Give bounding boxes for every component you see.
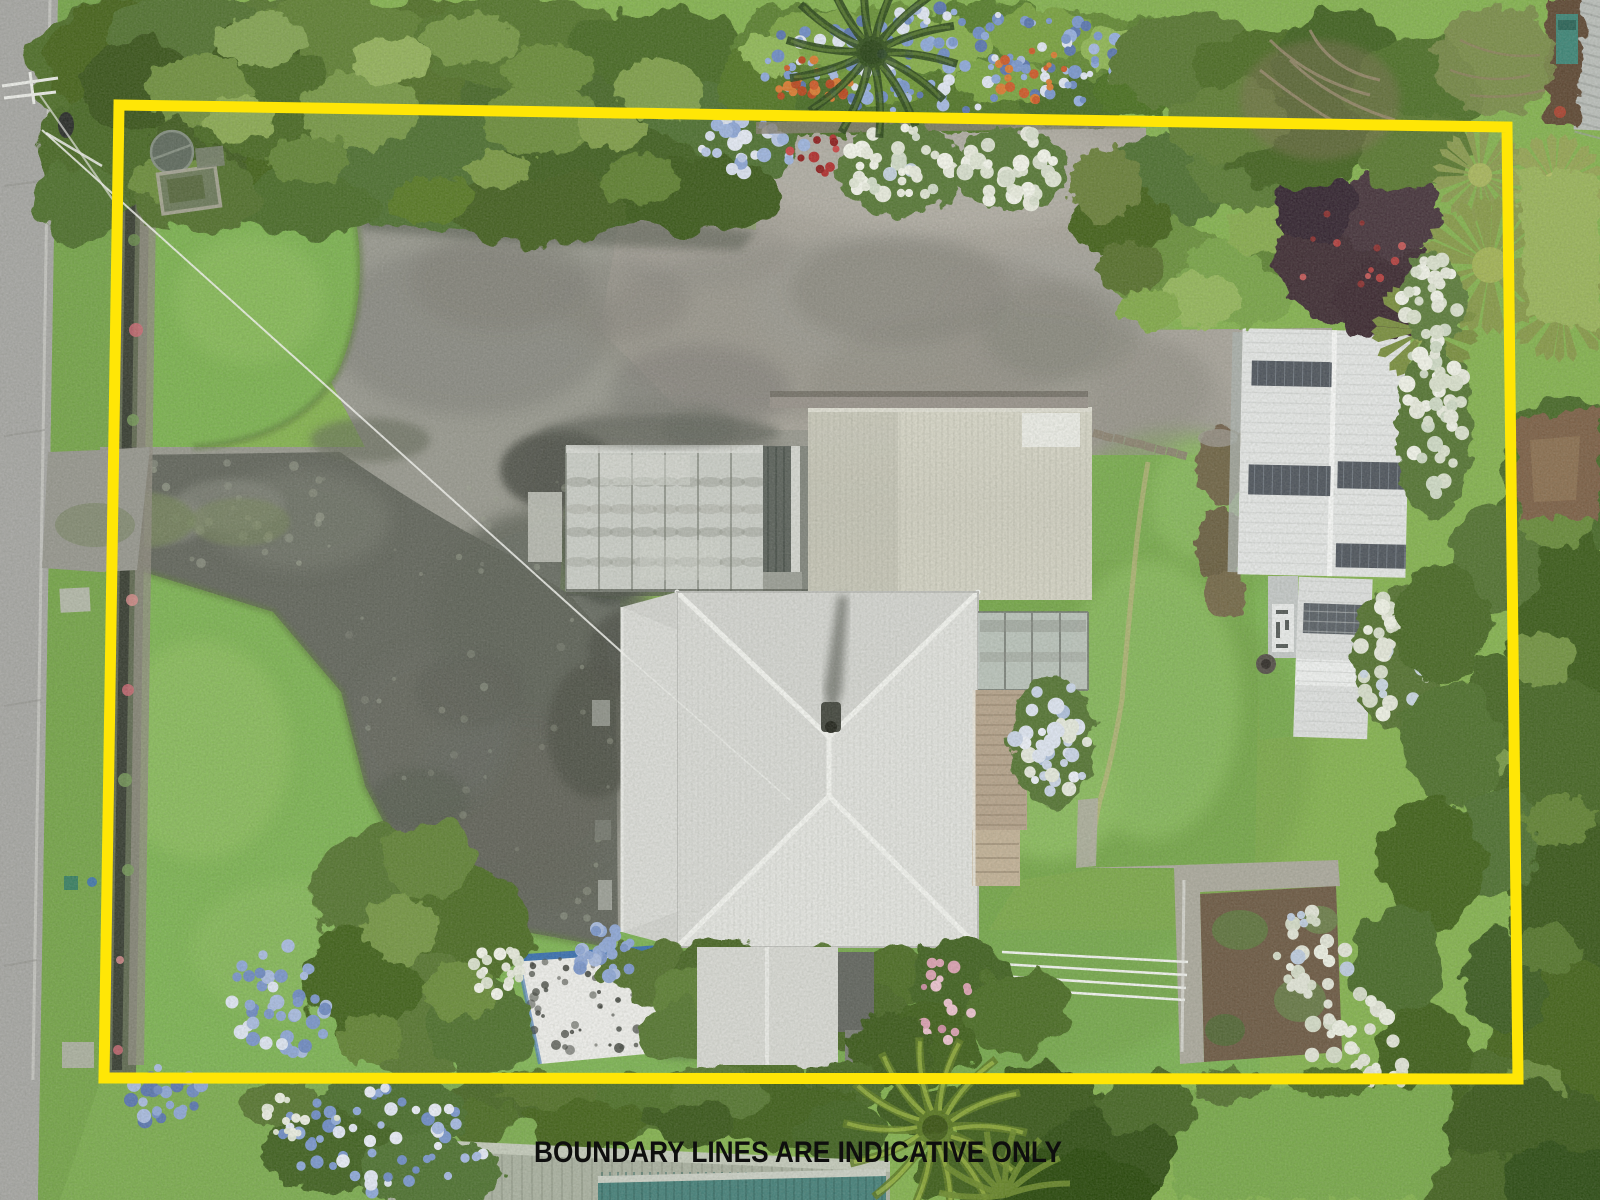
svg-text:BOUNDARY LINES ARE INDICATIVE: BOUNDARY LINES ARE INDICATIVE ONLY (534, 1136, 1062, 1169)
